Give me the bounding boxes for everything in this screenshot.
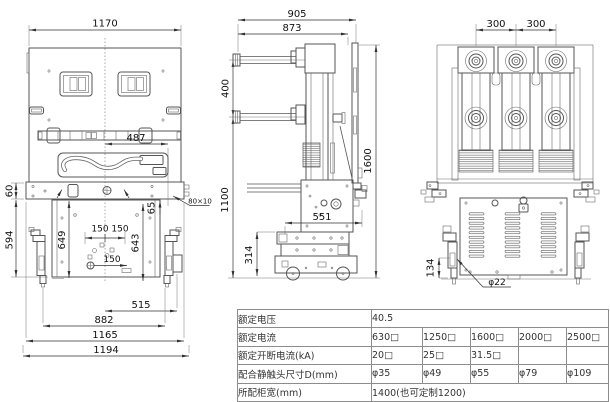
dim-label-phi22: φ22	[488, 278, 505, 288]
note-bar-size: 80×10	[173, 196, 212, 206]
dim-label-487: 487	[126, 133, 145, 144]
dim-label-551: 551	[312, 212, 331, 223]
dim-label-1194: 1194	[93, 345, 118, 356]
dim-left-rail: 649	[52, 201, 69, 279]
dim-pole-pitch: 300 300	[476, 19, 556, 46]
dim-label-1170: 1170	[92, 19, 117, 30]
dim-depth-body: 873	[238, 23, 348, 45]
dim-label-1100: 1100	[220, 187, 231, 212]
upper-bushing-arm	[233, 48, 305, 67]
handle-bar	[38, 128, 181, 143]
dim-label-882: 882	[94, 315, 113, 326]
rear-left-latch	[421, 182, 446, 202]
bellows-band	[459, 150, 493, 172]
front-panel	[27, 48, 181, 182]
dim-span-inner: 515	[105, 274, 177, 311]
spec-value-cabinet-width: 1400(也可定制1200)	[372, 383, 609, 401]
dim-label-65: 65	[147, 202, 158, 215]
spec-row-contact-size: 配合静触头尺寸D(mm) φ35 φ49 φ55 φ79 φ109	[238, 365, 609, 383]
dim-label-905: 905	[287, 9, 306, 20]
side-louver-vent	[303, 143, 320, 167]
spec-value-current-1: 630□	[372, 328, 423, 346]
technical-drawing-page: 1170	[0, 0, 610, 402]
bellows-band	[499, 150, 533, 172]
bellows-band	[539, 150, 573, 172]
spec-value-contact-1: φ35	[372, 365, 423, 383]
spec-value-contact-3: φ55	[471, 365, 519, 383]
dim-label-150: 150	[103, 255, 120, 265]
dim-label-300-left: 300	[486, 19, 505, 30]
note-pin-diameter: φ22	[457, 259, 511, 288]
spec-row-cabinet-width: 所配柜宽(mm) 1400(也可定制1200)	[238, 383, 609, 401]
louver-group	[503, 211, 521, 258]
spec-label-breaking-current: 额定开断电流(kA)	[238, 346, 372, 364]
spec-value-breaking-5	[567, 346, 609, 364]
spec-row-current: 额定电流 630□ 1250□ 1600□ 2000□ 2500□	[238, 328, 609, 346]
dim-label-314: 314	[244, 245, 255, 264]
breaker-body	[303, 44, 352, 180]
side-view: 905 873 400 1100	[220, 9, 380, 280]
spec-table: 额定电压 40.5 额定电流 630□ 1250□ 1600□ 2000□ 25…	[237, 309, 609, 402]
dim-label-515: 515	[131, 300, 150, 311]
dim-label-594: 594	[5, 230, 16, 249]
dim-slot-offset: 65	[147, 201, 161, 215]
dim-right-rail: 643	[131, 204, 144, 281]
trolley	[275, 256, 357, 280]
dim-label-643: 643	[131, 233, 142, 252]
front-right-arm	[164, 228, 182, 288]
front-left-arm	[29, 228, 46, 288]
front-view: 1170	[5, 19, 212, 357]
back-panel	[352, 43, 362, 183]
dim-height-total: 1600	[359, 45, 380, 278]
rear-left-arm	[443, 226, 457, 284]
spec-row-voltage: 额定电压 40.5	[238, 310, 609, 328]
spec-value-breaking-3: 31.5□	[471, 346, 519, 364]
spec-value-breaking-1: 20□	[372, 346, 423, 364]
dim-base-depth: 551	[285, 210, 362, 234]
spec-label-rated-voltage: 额定电压	[238, 310, 372, 328]
dim-label-1600: 1600	[363, 148, 374, 173]
side-chassis	[247, 180, 367, 232]
spec-row-breaking-current: 额定开断电流(kA) 20□ 25□ 31.5□	[238, 346, 609, 364]
note-label-80x10: 80×10	[188, 198, 212, 206]
rear-right-arm	[575, 226, 589, 284]
spec-value-contact-5: φ109	[567, 365, 609, 383]
spec-value-current-4: 2000□	[519, 328, 567, 346]
spec-value-contact-4: φ79	[519, 365, 567, 383]
slide-drawer	[277, 232, 349, 256]
dim-label-300-right: 300	[526, 19, 545, 30]
dim-label-134: 134	[426, 258, 437, 277]
rear-right-latch	[574, 182, 599, 202]
dim-label-400: 400	[221, 79, 232, 98]
spec-value-breaking-4	[519, 346, 567, 364]
spec-label-contact-size: 配合静触头尺寸D(mm)	[238, 365, 372, 383]
spec-label-cabinet-width: 所配柜宽(mm)	[238, 383, 372, 401]
dim-label-1165: 1165	[92, 330, 117, 341]
dim-label-873: 873	[282, 23, 301, 34]
dim-label-60: 60	[5, 185, 16, 198]
dim-hole-pitch: 150	[87, 255, 132, 273]
spec-value-breaking-2: 25□	[423, 346, 471, 364]
rear-lower-panel	[460, 197, 567, 279]
lower-bushing-arm	[233, 105, 305, 124]
pole-assemblies	[452, 47, 580, 180]
spec-value-current-5: 2500□	[567, 328, 609, 346]
dim-label-150-150: 150 150	[91, 225, 128, 235]
louver-group	[467, 211, 485, 258]
spec-label-rated-current: 额定电流	[238, 328, 372, 346]
spec-value-current-2: 1250□	[423, 328, 471, 346]
spec-value-rated-voltage: 40.5	[372, 310, 609, 328]
spec-value-contact-2: φ49	[423, 365, 471, 383]
dim-label-649: 649	[57, 230, 68, 249]
dim-strip-height: 60	[5, 183, 25, 199]
dim-pin-height: 134	[426, 258, 451, 278]
dim-base-height: 314	[244, 232, 275, 276]
louver-group	[539, 211, 557, 258]
front-strip	[26, 182, 189, 199]
dim-hole-pitch-pair: 150 150	[85, 225, 129, 245]
spec-value-current-3: 1600□	[471, 328, 519, 346]
dim-handle-offset: 487	[105, 133, 168, 206]
cable-assembly	[58, 153, 168, 177]
rear-view: 300 300	[421, 19, 599, 288]
dim-height-lower: 1100	[220, 117, 233, 278]
dim-span-total: 1194	[23, 345, 189, 356]
dim-arm-pitch: 400	[221, 60, 242, 117]
